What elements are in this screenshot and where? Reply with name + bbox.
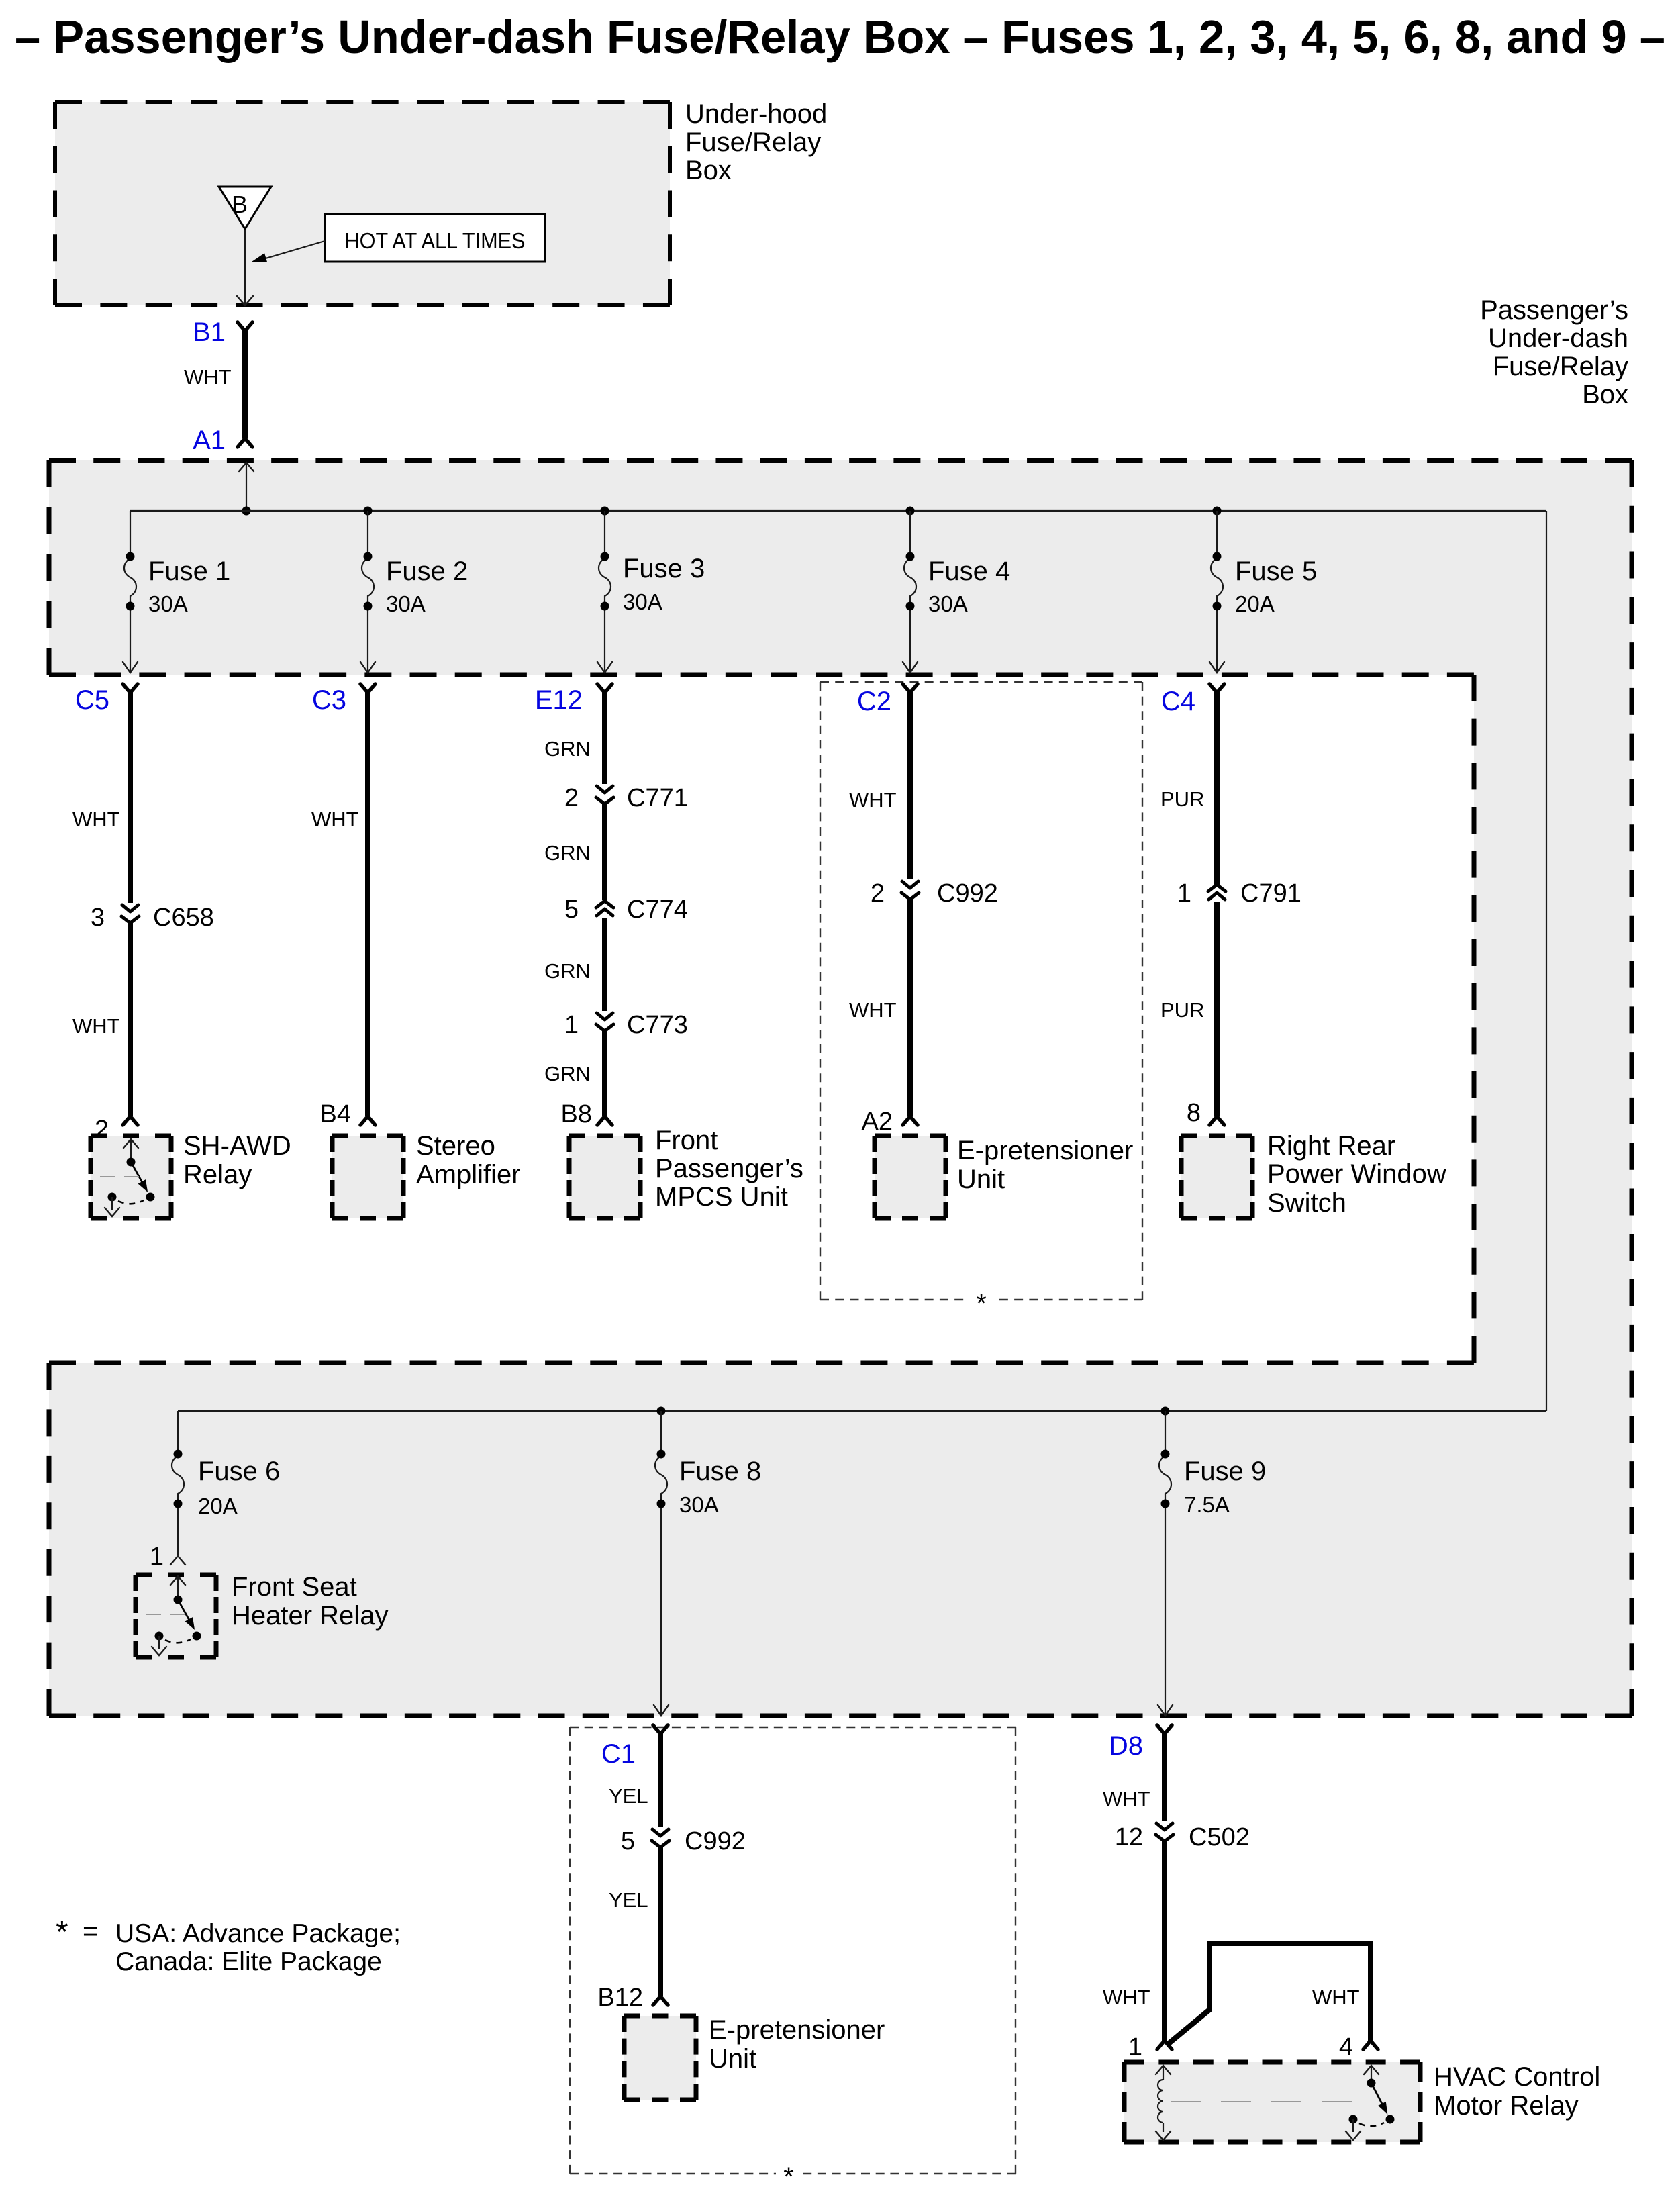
svg-text:WHT: WHT xyxy=(1103,1787,1150,1810)
svg-text:Fuse/Relay: Fuse/Relay xyxy=(1493,352,1628,381)
svg-text:=: = xyxy=(83,1916,98,1946)
svg-text:Switch: Switch xyxy=(1267,1188,1346,1218)
svg-text:E12: E12 xyxy=(535,685,583,715)
svg-text:– Passenger’s Under-dash Fuse/: – Passenger’s Under-dash Fuse/Relay Box … xyxy=(15,11,1665,63)
svg-text:WHT: WHT xyxy=(849,788,897,812)
svg-text:C658: C658 xyxy=(153,904,214,932)
svg-text:1: 1 xyxy=(1128,2033,1142,2061)
svg-text:USA: Advance Package;: USA: Advance Package; xyxy=(115,1919,401,1948)
svg-text:Right Rear: Right Rear xyxy=(1267,1131,1395,1161)
svg-text:30A: 30A xyxy=(679,1492,719,1517)
svg-text:5: 5 xyxy=(621,1827,635,1855)
svg-text:2: 2 xyxy=(871,879,885,908)
svg-text:C2: C2 xyxy=(857,687,891,716)
svg-text:Heater Relay: Heater Relay xyxy=(232,1601,388,1631)
svg-text:Relay: Relay xyxy=(183,1160,252,1189)
svg-text:E-pretensioner: E-pretensioner xyxy=(709,2015,885,2045)
svg-text:HVAC Control: HVAC Control xyxy=(1434,2062,1600,2092)
svg-text:*: * xyxy=(783,2162,794,2187)
svg-text:Canada: Elite Package: Canada: Elite Package xyxy=(115,1947,382,1976)
svg-text:SH-AWD: SH-AWD xyxy=(183,1131,291,1161)
svg-text:C992: C992 xyxy=(937,879,998,908)
svg-text:Box: Box xyxy=(1582,380,1628,409)
svg-text:B12: B12 xyxy=(597,1984,643,2012)
svg-text:Fuse 9: Fuse 9 xyxy=(1184,1457,1266,1486)
svg-text:PUR: PUR xyxy=(1160,787,1204,811)
svg-text:MPCS Unit: MPCS Unit xyxy=(655,1182,788,1212)
svg-text:1: 1 xyxy=(564,1011,579,1039)
svg-text:WHT: WHT xyxy=(311,808,359,831)
svg-text:Fuse 8: Fuse 8 xyxy=(679,1457,761,1486)
svg-text:1: 1 xyxy=(1177,879,1191,908)
svg-text:E-pretensioner: E-pretensioner xyxy=(957,1136,1133,1165)
svg-text:2: 2 xyxy=(564,784,579,812)
svg-text:Box: Box xyxy=(685,156,732,185)
svg-text:*: * xyxy=(56,1914,68,1950)
svg-text:C771: C771 xyxy=(627,784,688,812)
svg-text:Unit: Unit xyxy=(709,2044,756,2074)
svg-text:C3: C3 xyxy=(312,685,346,715)
svg-text:Under-hood: Under-hood xyxy=(685,99,827,129)
svg-text:Amplifier: Amplifier xyxy=(416,1160,521,1189)
svg-text:B: B xyxy=(232,191,248,218)
svg-text:20A: 20A xyxy=(1235,591,1275,616)
svg-text:GRN: GRN xyxy=(544,841,591,865)
svg-text:HOT AT ALL TIMES: HOT AT ALL TIMES xyxy=(345,228,526,253)
svg-text:Fuse 3: Fuse 3 xyxy=(623,554,705,583)
svg-text:Fuse 5: Fuse 5 xyxy=(1235,556,1317,586)
svg-text:Passenger’s: Passenger’s xyxy=(655,1154,803,1183)
svg-text:30A: 30A xyxy=(928,591,968,616)
svg-text:WHT: WHT xyxy=(184,365,232,389)
svg-text:YEL: YEL xyxy=(609,1784,648,1808)
svg-text:B8: B8 xyxy=(561,1100,592,1128)
svg-text:C791: C791 xyxy=(1240,879,1301,908)
svg-text:A1: A1 xyxy=(193,426,226,455)
svg-text:4: 4 xyxy=(1339,2033,1353,2061)
svg-text:A2: A2 xyxy=(862,1108,893,1136)
svg-text:1: 1 xyxy=(150,1543,164,1571)
svg-text:WHT: WHT xyxy=(72,808,120,831)
svg-text:20A: 20A xyxy=(198,1494,238,1518)
svg-text:Motor Relay: Motor Relay xyxy=(1434,2091,1579,2121)
svg-text:WHT: WHT xyxy=(72,1014,120,1038)
svg-text:C773: C773 xyxy=(627,1011,688,1039)
svg-text:GRN: GRN xyxy=(544,737,591,761)
svg-text:Front Seat: Front Seat xyxy=(232,1572,357,1602)
svg-text:WHT: WHT xyxy=(1312,1986,1360,2009)
svg-text:GRN: GRN xyxy=(544,1062,591,1085)
svg-text:5: 5 xyxy=(564,895,579,924)
svg-text:Passenger’s: Passenger’s xyxy=(1480,295,1628,325)
svg-text:30A: 30A xyxy=(386,591,426,616)
svg-text:D8: D8 xyxy=(1109,1731,1143,1761)
svg-text:B4: B4 xyxy=(320,1100,351,1128)
svg-text:C5: C5 xyxy=(75,685,109,715)
svg-text:Fuse 4: Fuse 4 xyxy=(928,556,1010,586)
svg-text:YEL: YEL xyxy=(609,1888,648,1912)
svg-text:Front: Front xyxy=(655,1126,718,1155)
svg-text:Unit: Unit xyxy=(957,1165,1005,1194)
svg-text:B1: B1 xyxy=(193,318,226,347)
svg-text:GRN: GRN xyxy=(544,959,591,983)
svg-text:Fuse 6: Fuse 6 xyxy=(198,1457,280,1486)
svg-text:30A: 30A xyxy=(623,589,662,614)
svg-text:WHT: WHT xyxy=(1103,1986,1150,2009)
svg-text:3: 3 xyxy=(91,904,105,932)
svg-text:Under-dash: Under-dash xyxy=(1488,324,1628,353)
svg-text:Fuse 2: Fuse 2 xyxy=(386,556,468,586)
svg-text:C1: C1 xyxy=(601,1739,636,1769)
svg-text:C774: C774 xyxy=(627,895,688,924)
svg-text:PUR: PUR xyxy=(1160,998,1204,1022)
svg-text:30A: 30A xyxy=(148,591,188,616)
svg-text:Fuse 1: Fuse 1 xyxy=(148,556,230,586)
svg-text:Fuse/Relay: Fuse/Relay xyxy=(685,128,821,157)
svg-text:C502: C502 xyxy=(1189,1823,1250,1851)
svg-text:Power Window: Power Window xyxy=(1267,1159,1446,1189)
svg-text:C992: C992 xyxy=(685,1827,746,1855)
svg-text:*: * xyxy=(976,1289,987,1318)
svg-text:12: 12 xyxy=(1115,1823,1143,1851)
svg-text:7.5A: 7.5A xyxy=(1184,1492,1230,1517)
svg-text:C4: C4 xyxy=(1161,687,1195,716)
svg-text:Stereo: Stereo xyxy=(416,1131,495,1161)
svg-text:WHT: WHT xyxy=(849,998,897,1022)
svg-text:8: 8 xyxy=(1187,1099,1201,1127)
